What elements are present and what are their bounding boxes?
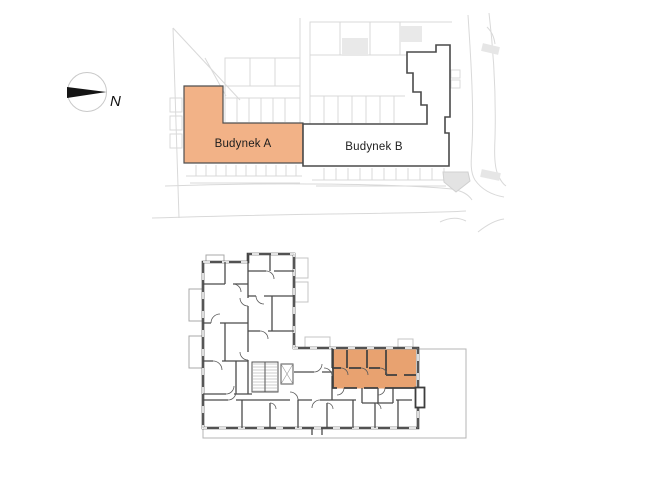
elevator (281, 364, 293, 384)
apartment-locator: Budynek A Budynek B N (0, 0, 654, 491)
building-a-label: Budynek A (215, 138, 272, 150)
highlighted-unit[interactable] (333, 350, 416, 389)
building-b-label: Budynek B (345, 141, 403, 153)
north-label: N (110, 93, 121, 110)
entry-balcony (416, 388, 425, 408)
north-arrow-icon (67, 87, 107, 98)
compass: N (67, 73, 121, 112)
floor-plan (189, 254, 466, 438)
staircase (252, 362, 278, 392)
site-plan: Budynek A Budynek B N (67, 13, 506, 232)
